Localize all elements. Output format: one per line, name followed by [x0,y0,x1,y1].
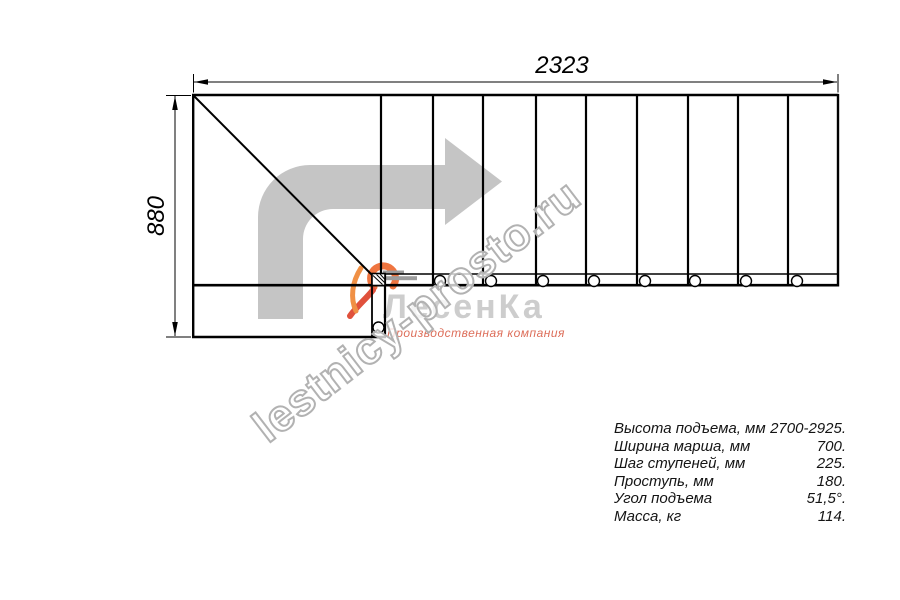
spec-label: Высота подъема, мм [614,420,766,438]
baluster-circle [538,276,549,287]
spec-label: Проступь, мм [614,473,714,491]
baluster-circle [589,276,600,287]
baluster-circle [690,276,701,287]
spec-label: Шаг ступеней, мм [614,455,745,473]
stair-drawing-page: ЛесенКа Производственная компания [0,0,900,600]
spec-label: Ширина марша, мм [614,438,750,456]
width-dimension: 2323 [194,52,839,93]
spec-table: Высота подъема, мм 2700-2925. Ширина мар… [614,420,846,526]
spec-value: 700. [817,438,846,456]
dimension-arrowhead [172,96,178,110]
spec-row: Масса, кг 114. [614,508,846,526]
dimension-arrowhead [823,79,837,85]
spec-row: Ширина марша, мм 700. [614,438,846,456]
spec-row: Шаг ступеней, мм 225. [614,455,846,473]
dimension-arrowhead [172,322,178,336]
spec-value: 180. [817,473,846,491]
spec-label: Масса, кг [614,508,681,526]
spec-value: 114. [818,508,846,526]
spec-label: Угол подъема [614,490,712,508]
spec-row: Проступь, мм 180. [614,473,846,491]
height-dimension-label: 880 [143,195,170,236]
baluster-circle [741,276,752,287]
spec-value: 225. [817,455,846,473]
height-dimension: 880 [143,96,191,338]
baluster-circle [640,276,651,287]
spec-value: 51,5°. [807,490,846,508]
width-dimension-label: 2323 [534,52,589,79]
spec-row: Угол подъема 51,5°. [614,490,846,508]
spec-value: 2700-2925. [770,420,846,438]
spec-row: Высота подъема, мм 2700-2925. [614,420,846,438]
dimension-arrowhead [194,79,208,85]
corner-square [372,274,385,286]
baluster-circle [792,276,803,287]
corner-junction [372,274,385,286]
